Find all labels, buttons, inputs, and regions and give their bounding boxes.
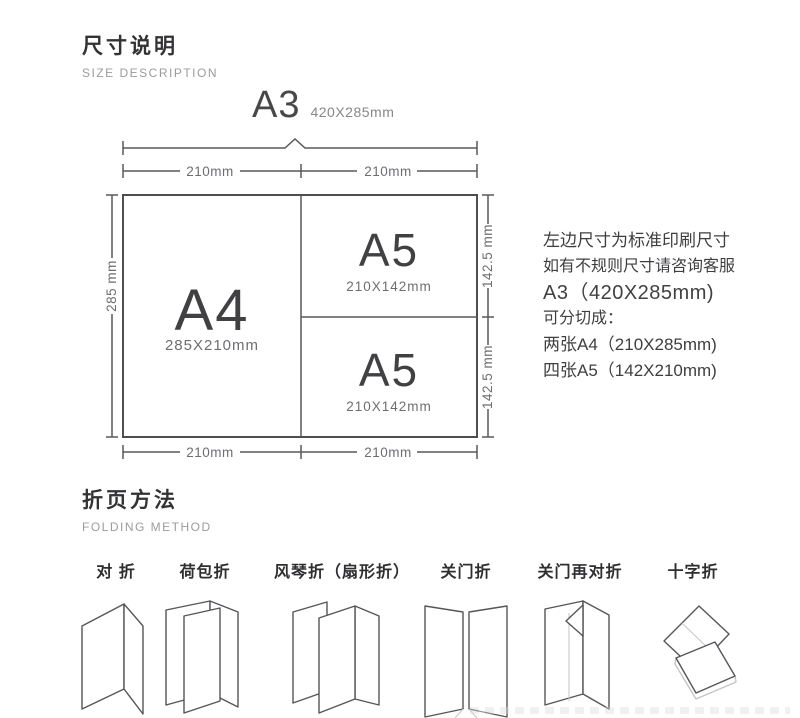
a3-heading-label: A3 (252, 84, 300, 127)
fold-method-accordion-fold: 风琴折（扇形折） (274, 558, 398, 718)
a3-heading-dims: 420X285mm (310, 104, 394, 120)
bottom-left-width-label: 210mm (186, 445, 234, 460)
right-bottom-height-label: 142.5 mm (480, 345, 495, 409)
top-left-width-label: 210mm (186, 164, 234, 179)
fold-label-accordion-fold: 风琴折（扇形折） (274, 558, 398, 582)
right-top-height-label: 142.5 mm (480, 224, 495, 288)
size-section-header: 尺寸说明 SIZE DESCRIPTION (82, 30, 218, 80)
note-line-2: 如有不规则尺寸请咨询客服 (543, 254, 735, 280)
fold-method-roll-fold: 荷包折 (143, 558, 267, 718)
cross-fold-icon (638, 596, 748, 718)
folding-section-header: 折页方法 FOLDING METHOD (82, 484, 212, 534)
note-line-4: 可分切成： (543, 306, 735, 332)
size-notes: 左边尺寸为标准印刷尺寸 如有不规则尺寸请咨询客服 A3（420X285mm) 可… (543, 228, 735, 384)
folding-section-title: 折页方法 (82, 484, 212, 514)
fold-method-gate-half-fold: 关门再对折 (518, 558, 642, 718)
note-line-5: 两张A4（210X285mm) (543, 332, 735, 358)
size-section-subtitle: SIZE DESCRIPTION (82, 66, 218, 80)
note-line-6: 四张A5（142X210mm) (543, 358, 735, 384)
a3-span-line (123, 139, 477, 148)
size-section-title: 尺寸说明 (82, 30, 218, 60)
fold-label-gate-half-fold: 关门再对折 (518, 558, 642, 582)
fold-label-cross-fold: 十字折 (631, 558, 755, 582)
roll-fold-icon (150, 596, 260, 718)
fold-label-roll-fold: 荷包折 (143, 558, 267, 582)
accordion-fold-icon (281, 596, 391, 718)
note-line-1: 左边尺寸为标准印刷尺寸 (543, 228, 735, 254)
a5-bottom-label: A5 (359, 344, 419, 396)
fold-label-gate-fold: 关门折 (404, 558, 528, 582)
fold-method-cross-fold: 十字折 (631, 558, 755, 718)
gate-half-fold-icon (525, 596, 635, 718)
bottom-right-width-label: 210mm (364, 445, 412, 460)
a5-top-label: A5 (359, 224, 419, 276)
a4-label: A4 (175, 278, 250, 343)
folding-section-subtitle: FOLDING METHOD (82, 520, 212, 534)
a5-bottom-dims: 210X142mm (346, 399, 432, 414)
a3-heading: A3 420X285mm (252, 84, 394, 127)
watermark-remnant (470, 707, 790, 714)
left-height-label: 285 mm (104, 260, 119, 312)
top-right-width-label: 210mm (364, 164, 412, 179)
size-diagram: 210mm 210mm A4 285X210mm A5 210X142mm A5… (95, 138, 505, 470)
gate-fold-icon (411, 596, 521, 718)
fold-method-gate-fold: 关门折 (404, 558, 528, 718)
a5-top-dims: 210X142mm (346, 279, 432, 294)
note-line-3: A3（420X285mm) (543, 280, 735, 306)
a4-dims: 285X210mm (165, 337, 259, 354)
